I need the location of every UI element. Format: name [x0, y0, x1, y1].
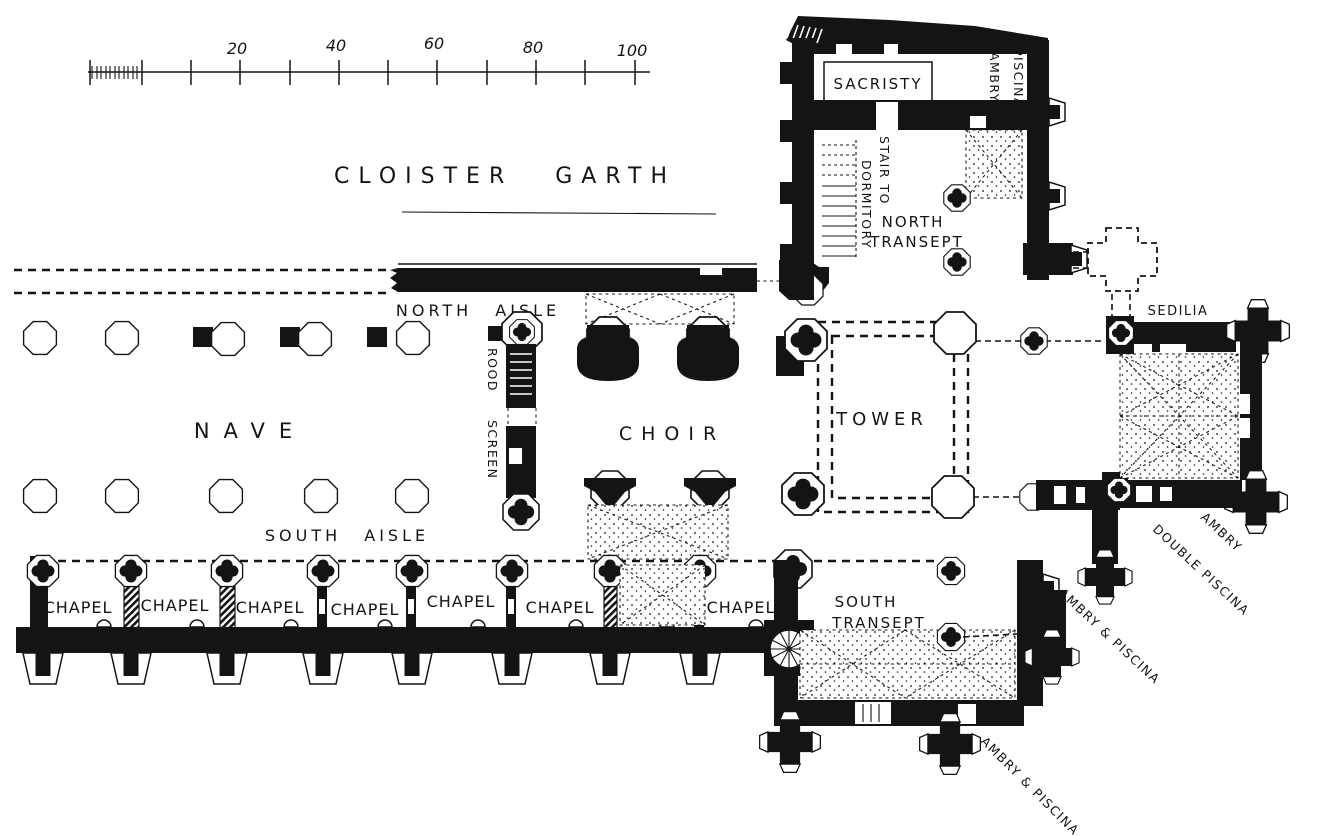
- piscina-north-label: PISCINA: [1011, 48, 1026, 108]
- nave-column: [212, 323, 245, 356]
- sacristy-north-wall: [786, 16, 1048, 54]
- nave-label: NAVE: [194, 419, 306, 443]
- north-transept-se-corner: [1023, 243, 1073, 275]
- scale-tick-40: 40: [326, 36, 346, 55]
- ambry-east-label: AMBRY: [1198, 509, 1245, 555]
- west-wall-buttress: [780, 182, 792, 204]
- chapel-label: CHAPEL: [707, 598, 776, 617]
- north-transept-pier: [944, 185, 970, 211]
- dashed-cross-links: [1112, 294, 1130, 316]
- nave-pier-base: [193, 327, 213, 347]
- sacristy-door: [876, 102, 898, 130]
- north-transept-label-1: NORTH: [882, 213, 945, 231]
- rood-screen-notch: [509, 448, 522, 464]
- tower-nw-pier: [785, 319, 827, 361]
- sacristy-label: SACRISTY: [834, 75, 923, 93]
- nave-column: [106, 480, 139, 513]
- tower-sw-pier: [782, 473, 824, 515]
- scale-bar: 20 40 60 80 100: [88, 34, 650, 85]
- east-respond-pier: [1021, 328, 1047, 354]
- cloister-garth: CLOISTER GARTH: [334, 164, 716, 214]
- cloister-garth-label: CLOISTER GARTH: [334, 164, 676, 189]
- nave-column: [24, 480, 57, 513]
- scale-tick-80: 80: [523, 38, 543, 57]
- presbytery: SEDILIA: [1102, 300, 1289, 534]
- nave-column: [305, 480, 338, 513]
- nave-column: [106, 322, 139, 355]
- south-transept-east-wall: [1017, 560, 1043, 706]
- rood-screen: ROOD SCREEN: [485, 312, 542, 530]
- south-recess: [958, 704, 976, 724]
- nave-column: [24, 322, 57, 355]
- chapel-label: CHAPEL: [44, 598, 113, 617]
- east-wall-recess: [1240, 418, 1250, 438]
- west-wall-buttress: [780, 244, 792, 266]
- chapel-divider-hatched: [604, 586, 617, 630]
- west-wall-buttress: [780, 62, 792, 84]
- south-transept-south-wall: [774, 700, 1024, 726]
- sacristy-recess: [970, 116, 986, 128]
- nave-column: [299, 323, 332, 356]
- south-aisle-label: SOUTH AISLE: [265, 526, 429, 545]
- south-transept-pier: [937, 557, 964, 584]
- sedilia-label: SEDILIA: [1148, 304, 1209, 319]
- north-transept-label-2: TRANSEPT: [869, 233, 964, 251]
- choir-south-vault-bay: [588, 505, 728, 559]
- south-wall-buttresses: [23, 653, 720, 684]
- ambry-north-label: AMBRY: [987, 52, 1002, 103]
- south-door: [855, 702, 891, 724]
- nave-north-dashed-walls: [14, 270, 388, 293]
- north-transept-pier: [944, 249, 970, 275]
- nave-column: [396, 480, 429, 513]
- nave-pier-base: [280, 327, 300, 347]
- nave-arcade-south: [24, 480, 429, 513]
- ambry-piscina-south-label: AMBRY & PISCINA: [978, 734, 1083, 836]
- scale-tick-20: 20: [227, 39, 247, 58]
- chapel-divider-hatched: [220, 586, 235, 630]
- corner-buttress-cross: [1078, 550, 1132, 604]
- chapel-label: CHAPEL: [236, 598, 305, 617]
- tower-ne-pier: [934, 312, 976, 354]
- presbytery-sw-pier: [1107, 478, 1130, 501]
- tower-label: TOWER: [835, 409, 928, 430]
- dashed-cross-outline: [1088, 228, 1157, 291]
- nave-column: [397, 322, 430, 355]
- north-aisle-wall: [390, 260, 829, 305]
- south-transept-pier: [937, 623, 964, 650]
- chapel-label: CHAPEL: [526, 598, 595, 617]
- stair-to-label: STAIR TO: [877, 136, 892, 205]
- east-wall-buttress: [1049, 182, 1065, 210]
- choir: CHOIR: [577, 294, 739, 559]
- scale-tick-60: 60: [424, 34, 444, 53]
- nave-column: [210, 480, 243, 513]
- nave-pier-base: [367, 327, 387, 347]
- floor-plan-page: 20 40 60 80 100 CLOISTER GARTH: [0, 0, 1322, 836]
- chapel-label: CHAPEL: [141, 596, 210, 615]
- east-wall-recess: [1240, 394, 1250, 414]
- sacristy-south-wall: [814, 100, 1030, 130]
- sacristy-recess: [884, 44, 898, 55]
- rood-screen-south-pier: [503, 494, 539, 530]
- chapel-south-wall: [16, 627, 770, 653]
- west-range-wall: [792, 38, 814, 300]
- scale-tick-100: 100: [617, 41, 648, 60]
- screen-label: SCREEN: [485, 420, 500, 480]
- rood-label: ROOD: [485, 348, 500, 392]
- chapel-divider-hatched: [124, 586, 139, 630]
- rood-respond: [488, 326, 502, 341]
- aisle-wall-notch: [700, 268, 722, 275]
- chapel-label: CHAPEL: [331, 600, 400, 619]
- sacristy-block: SACRISTY AMBRY PISCINA: [780, 16, 1065, 300]
- chapel-label: CHAPEL: [427, 592, 496, 611]
- floor-plan-svg: 20 40 60 80 100 CLOISTER GARTH: [0, 0, 1322, 836]
- south-transept-label-2: TRANSEPT: [831, 614, 926, 632]
- sacristy-recess: [836, 44, 852, 55]
- rood-pier-core: [510, 320, 535, 345]
- cloister-alley-wall-line: [402, 212, 716, 214]
- tower-se-pier: [932, 476, 974, 518]
- choir-label: CHOIR: [619, 423, 725, 445]
- south-transept: SOUTH TRANSEPT: [760, 557, 1059, 774]
- south-transept-label-1: SOUTH: [835, 593, 898, 611]
- east-wall-buttress: [1049, 98, 1065, 126]
- presbytery-nw-pier: [1109, 321, 1134, 346]
- nave-arcade-north: [24, 322, 430, 356]
- west-wall-buttress: [780, 120, 792, 142]
